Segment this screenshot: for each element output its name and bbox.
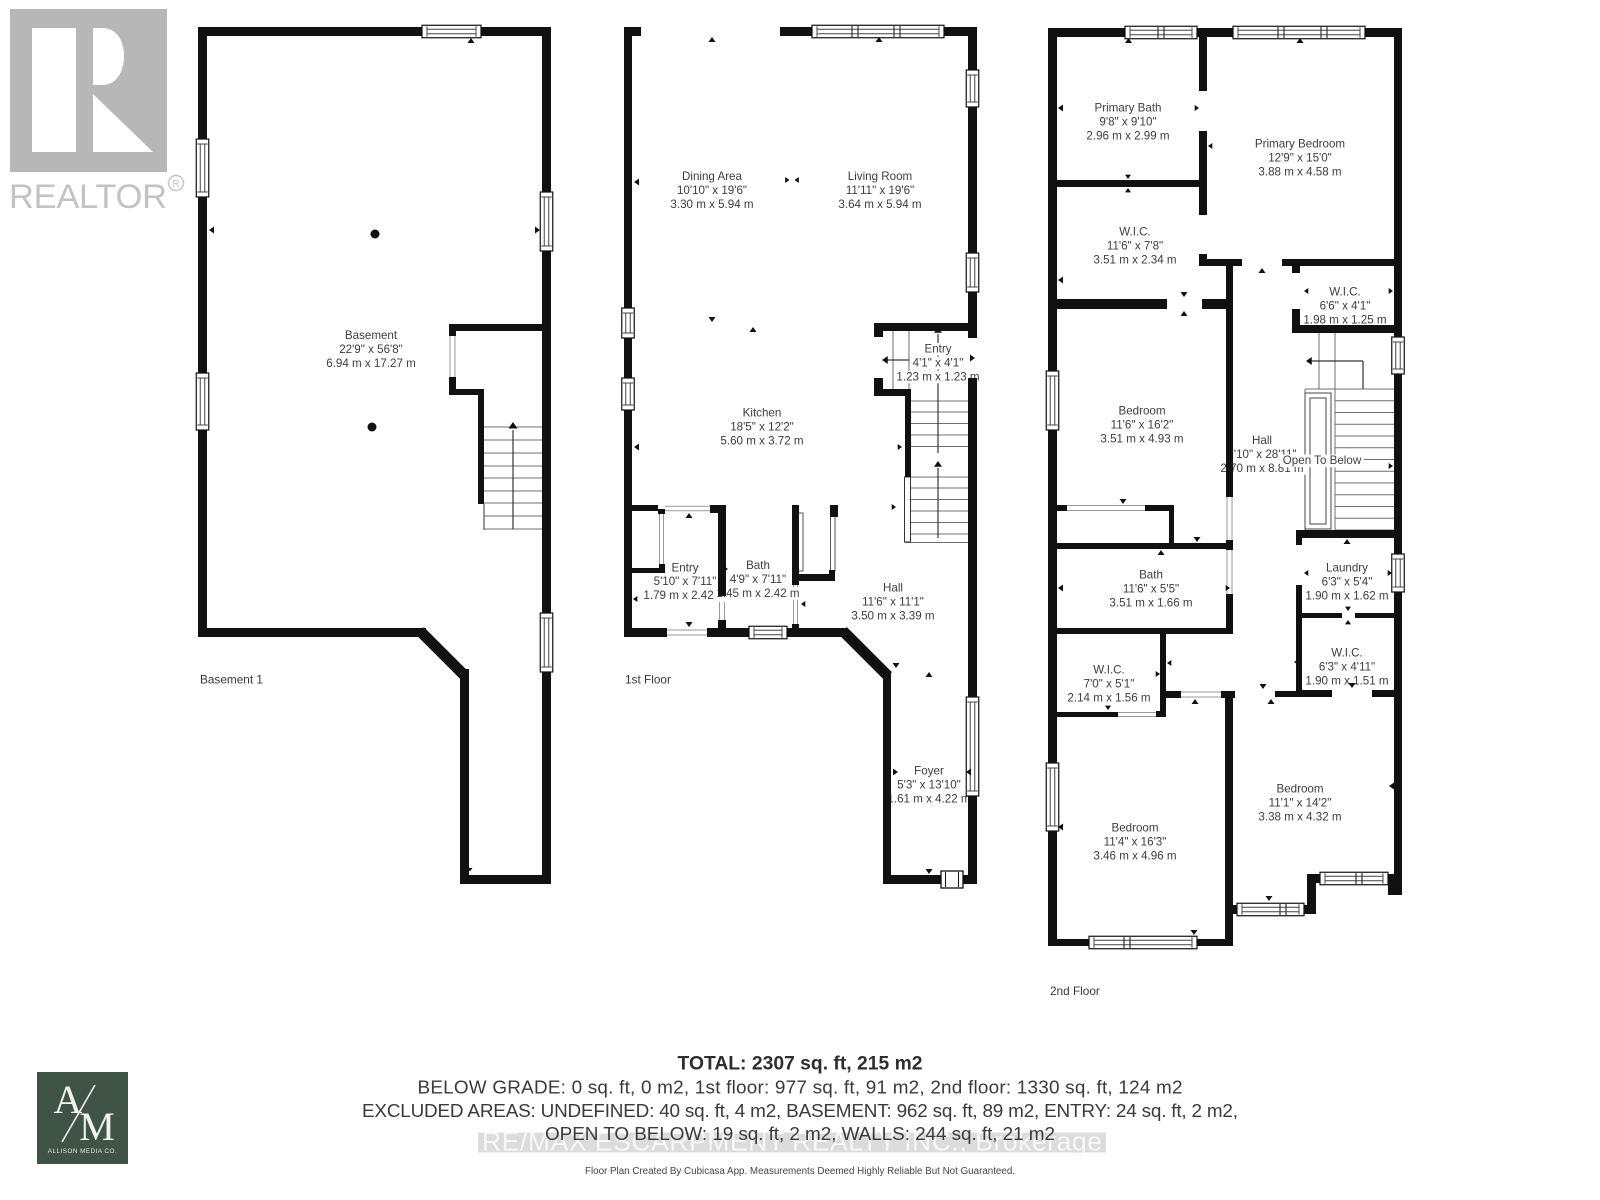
- svg-text:5'3" x 13'10": 5'3" x 13'10": [897, 779, 961, 792]
- svg-text:Basement: Basement: [345, 329, 398, 342]
- svg-text:1.61 m x 4.22 m: 1.61 m x 4.22 m: [887, 793, 970, 806]
- svg-text:3.50 m x 3.39 m: 3.50 m x 3.39 m: [851, 610, 934, 623]
- svg-text:REALTOR: REALTOR: [9, 178, 167, 216]
- svg-text:5'10" x 7'11": 5'10" x 7'11": [654, 575, 717, 588]
- svg-text:11'1" x 14'2": 11'1" x 14'2": [1269, 797, 1332, 810]
- svg-text:Laundry: Laundry: [1326, 562, 1368, 575]
- svg-text:Floor Plan Created By Cubicasa: Floor Plan Created By Cubicasa App. Meas…: [585, 1166, 1015, 1177]
- svg-text:Dining Area: Dining Area: [682, 170, 742, 183]
- svg-text:Bedroom: Bedroom: [1111, 822, 1158, 835]
- svg-text:W.I.C.: W.I.C.: [1331, 647, 1363, 660]
- svg-text:1.90 m x 1.51 m: 1.90 m x 1.51 m: [1305, 674, 1388, 687]
- svg-text:2nd Floor: 2nd Floor: [1050, 984, 1100, 998]
- svg-text:4'1" x 4'1": 4'1" x 4'1": [913, 356, 964, 369]
- svg-text:3.38 m x 4.32 m: 3.38 m x 4.32 m: [1258, 810, 1341, 823]
- svg-text:11'6" x 11'1": 11'6" x 11'1": [862, 596, 924, 609]
- svg-text:OPEN TO BELOW: 19 sq. ft, 2 m2: OPEN TO BELOW: 19 sq. ft, 2 m2, WALLS: 2…: [545, 1124, 1055, 1145]
- svg-text:1.45 m x 2.42 m: 1.45 m x 2.42 m: [716, 587, 799, 600]
- svg-text:M: M: [79, 1104, 115, 1149]
- svg-text:3.88 m x 4.58 m: 3.88 m x 4.58 m: [1258, 165, 1341, 178]
- svg-text:22'9" x 56'8": 22'9" x 56'8": [339, 343, 403, 356]
- svg-text:11'6" x 7'8": 11'6" x 7'8": [1107, 240, 1163, 253]
- svg-text:10'10" x 19'6": 10'10" x 19'6": [677, 184, 747, 197]
- svg-text:6'3" x 4'11": 6'3" x 4'11": [1319, 661, 1375, 674]
- svg-text:6.94 m x 17.27 m: 6.94 m x 17.27 m: [326, 357, 416, 370]
- svg-text:Primary Bath: Primary Bath: [1094, 102, 1161, 115]
- svg-text:5.60 m x 3.72 m: 5.60 m x 3.72 m: [720, 434, 803, 447]
- svg-text:11'11" x 19'6": 11'11" x 19'6": [846, 184, 914, 197]
- svg-text:Open To Below: Open To Below: [1283, 454, 1362, 467]
- svg-text:4'9" x 7'11": 4'9" x 7'11": [730, 573, 786, 586]
- svg-text:7'0" x 5'1": 7'0" x 5'1": [1084, 678, 1135, 691]
- svg-text:3.51 m x 2.34 m: 3.51 m x 2.34 m: [1093, 253, 1176, 266]
- svg-text:1st Floor: 1st Floor: [625, 673, 671, 687]
- svg-text:3.51 m x 1.66 m: 3.51 m x 1.66 m: [1109, 596, 1192, 609]
- svg-text:Bedroom: Bedroom: [1276, 783, 1323, 796]
- svg-text:ALLISON MEDIA CO.: ALLISON MEDIA CO.: [48, 1148, 117, 1155]
- svg-text:W.I.C.: W.I.C.: [1119, 226, 1151, 239]
- svg-text:Living Room: Living Room: [848, 170, 912, 183]
- svg-text:1.23 m x 1.23 m: 1.23 m x 1.23 m: [896, 370, 979, 383]
- svg-text:12'9" x 15'0": 12'9" x 15'0": [1268, 152, 1332, 165]
- svg-text:Foyer: Foyer: [914, 765, 944, 778]
- svg-text:Bath: Bath: [746, 559, 770, 572]
- svg-text:Basement 1: Basement 1: [200, 673, 263, 687]
- svg-text:1.79 m x 2.42 m: 1.79 m x 2.42 m: [643, 589, 726, 602]
- svg-text:3.51 m x 4.93 m: 3.51 m x 4.93 m: [1100, 432, 1183, 445]
- svg-text:2.96 m x 2.99 m: 2.96 m x 2.99 m: [1086, 129, 1169, 142]
- svg-text:Bath: Bath: [1139, 569, 1163, 582]
- svg-text:1.90 m x 1.62 m: 1.90 m x 1.62 m: [1305, 589, 1388, 602]
- svg-text:Entry: Entry: [671, 561, 698, 574]
- svg-text:BELOW GRADE: 0 sq. ft, 0 m2, 1: BELOW GRADE: 0 sq. ft, 0 m2, 1st floor: …: [418, 1078, 1183, 1099]
- svg-text:11'6" x 5'5": 11'6" x 5'5": [1123, 583, 1179, 596]
- svg-text:Primary Bedroom: Primary Bedroom: [1255, 138, 1345, 151]
- svg-text:W.I.C.: W.I.C.: [1093, 664, 1125, 677]
- svg-text:6'6" x 4'1": 6'6" x 4'1": [1320, 300, 1371, 313]
- svg-text:Entry: Entry: [924, 343, 951, 356]
- svg-text:R: R: [172, 179, 179, 190]
- svg-text:18'5" x 12'2": 18'5" x 12'2": [730, 420, 794, 433]
- svg-text:11'6" x 16'2": 11'6" x 16'2": [1111, 419, 1174, 432]
- svg-text:1.98 m x 1.25 m: 1.98 m x 1.25 m: [1303, 313, 1386, 326]
- svg-text:11'4" x 16'3": 11'4" x 16'3": [1104, 836, 1167, 849]
- svg-text:W.I.C.: W.I.C.: [1329, 286, 1361, 299]
- svg-text:Kitchen: Kitchen: [743, 407, 782, 420]
- svg-text:Hall: Hall: [883, 582, 903, 595]
- svg-text:9'8" x 9'10": 9'8" x 9'10": [1099, 116, 1156, 129]
- svg-text:TOTAL: 2307 sq. ft, 215 m2: TOTAL: 2307 sq. ft, 215 m2: [678, 1054, 923, 1075]
- svg-text:EXCLUDED AREAS: UNDEFINED: 40: EXCLUDED AREAS: UNDEFINED: 40 sq. ft, 4 …: [362, 1101, 1238, 1122]
- svg-text:Hall: Hall: [1252, 434, 1272, 447]
- svg-text:2.14 m x 1.56 m: 2.14 m x 1.56 m: [1067, 691, 1150, 704]
- svg-text:3.30 m x 5.94 m: 3.30 m x 5.94 m: [670, 198, 753, 211]
- svg-text:6'3" x 5'4": 6'3" x 5'4": [1322, 576, 1373, 589]
- svg-text:Bedroom: Bedroom: [1118, 405, 1165, 418]
- svg-text:3.64 m x 5.94 m: 3.64 m x 5.94 m: [838, 198, 921, 211]
- svg-text:3.46 m x 4.96 m: 3.46 m x 4.96 m: [1093, 849, 1176, 862]
